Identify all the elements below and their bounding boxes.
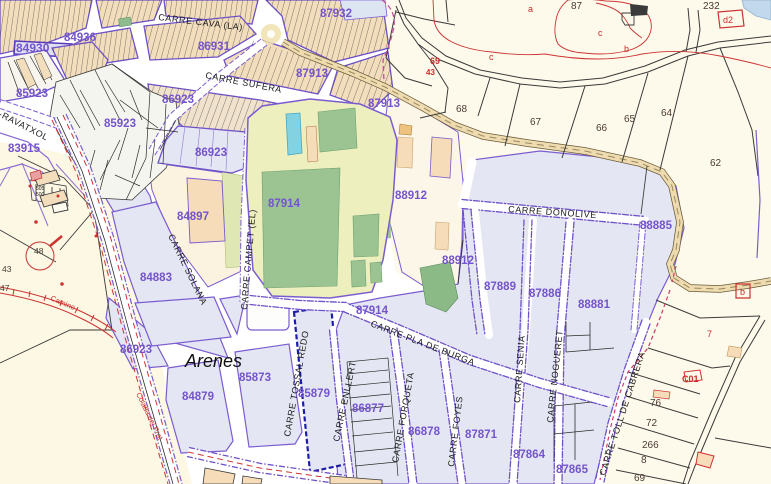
svg-text:88881: 88881 <box>578 299 611 311</box>
svg-text:83915: 83915 <box>8 143 41 155</box>
svg-text:86923: 86923 <box>162 94 194 106</box>
svg-text:87932: 87932 <box>320 8 352 20</box>
svg-text:84930: 84930 <box>16 41 50 55</box>
svg-text:8: 8 <box>641 455 647 466</box>
svg-text:87889: 87889 <box>484 281 516 293</box>
svg-text:87: 87 <box>571 1 583 12</box>
svg-text:232: 232 <box>703 1 720 12</box>
svg-text:72: 72 <box>646 418 658 429</box>
svg-text:c: c <box>489 52 494 62</box>
svg-text:66: 66 <box>596 123 608 134</box>
svg-text:88912: 88912 <box>442 255 474 267</box>
svg-text:87886: 87886 <box>529 288 561 300</box>
svg-text:Arenes: Arenes <box>184 351 242 371</box>
svg-text:87871: 87871 <box>465 429 498 441</box>
svg-text:86923: 86923 <box>120 344 152 356</box>
svg-text:86923: 86923 <box>195 147 227 159</box>
svg-text:88912: 88912 <box>395 190 427 202</box>
svg-text:87914: 87914 <box>268 198 301 210</box>
svg-text:266: 266 <box>642 440 659 451</box>
svg-text:85879: 85879 <box>298 388 330 400</box>
svg-text:87864: 87864 <box>513 449 546 461</box>
svg-text:87913: 87913 <box>296 68 328 80</box>
svg-text:a: a <box>528 4 533 14</box>
svg-text:68: 68 <box>456 104 468 115</box>
svg-text:86878: 86878 <box>408 426 441 438</box>
svg-text:84879: 84879 <box>182 391 214 403</box>
svg-text:7: 7 <box>707 329 712 339</box>
svg-text:62: 62 <box>710 158 722 169</box>
svg-text:87865: 87865 <box>556 464 589 476</box>
svg-text:43: 43 <box>426 68 435 77</box>
svg-text:84897: 84897 <box>177 211 209 223</box>
svg-text:500: 500 <box>36 192 45 198</box>
svg-text:48: 48 <box>34 246 44 256</box>
svg-text:87913: 87913 <box>368 98 400 110</box>
svg-text:85873: 85873 <box>239 372 271 384</box>
svg-text:87914: 87914 <box>356 305 389 317</box>
svg-text:b: b <box>624 44 629 54</box>
svg-text:d2: d2 <box>723 15 733 25</box>
svg-text:b: b <box>740 287 745 297</box>
svg-text:76: 76 <box>650 398 662 409</box>
svg-text:88885: 88885 <box>640 220 673 232</box>
svg-text:c: c <box>598 28 603 38</box>
svg-text:64: 64 <box>661 108 673 119</box>
svg-text:85923: 85923 <box>104 118 136 130</box>
svg-text:86877: 86877 <box>352 403 384 415</box>
svg-text:84936: 84936 <box>64 32 96 44</box>
svg-text:47: 47 <box>0 283 10 293</box>
svg-text:69: 69 <box>430 56 440 66</box>
svg-text:65: 65 <box>624 114 636 125</box>
svg-text:86931: 86931 <box>198 41 231 53</box>
svg-text:67: 67 <box>530 117 542 128</box>
svg-text:43: 43 <box>2 264 12 274</box>
svg-text:C01: C01 <box>682 374 699 384</box>
svg-text:85923: 85923 <box>16 88 48 100</box>
svg-text:69: 69 <box>634 473 646 484</box>
svg-text:84883: 84883 <box>140 272 172 284</box>
